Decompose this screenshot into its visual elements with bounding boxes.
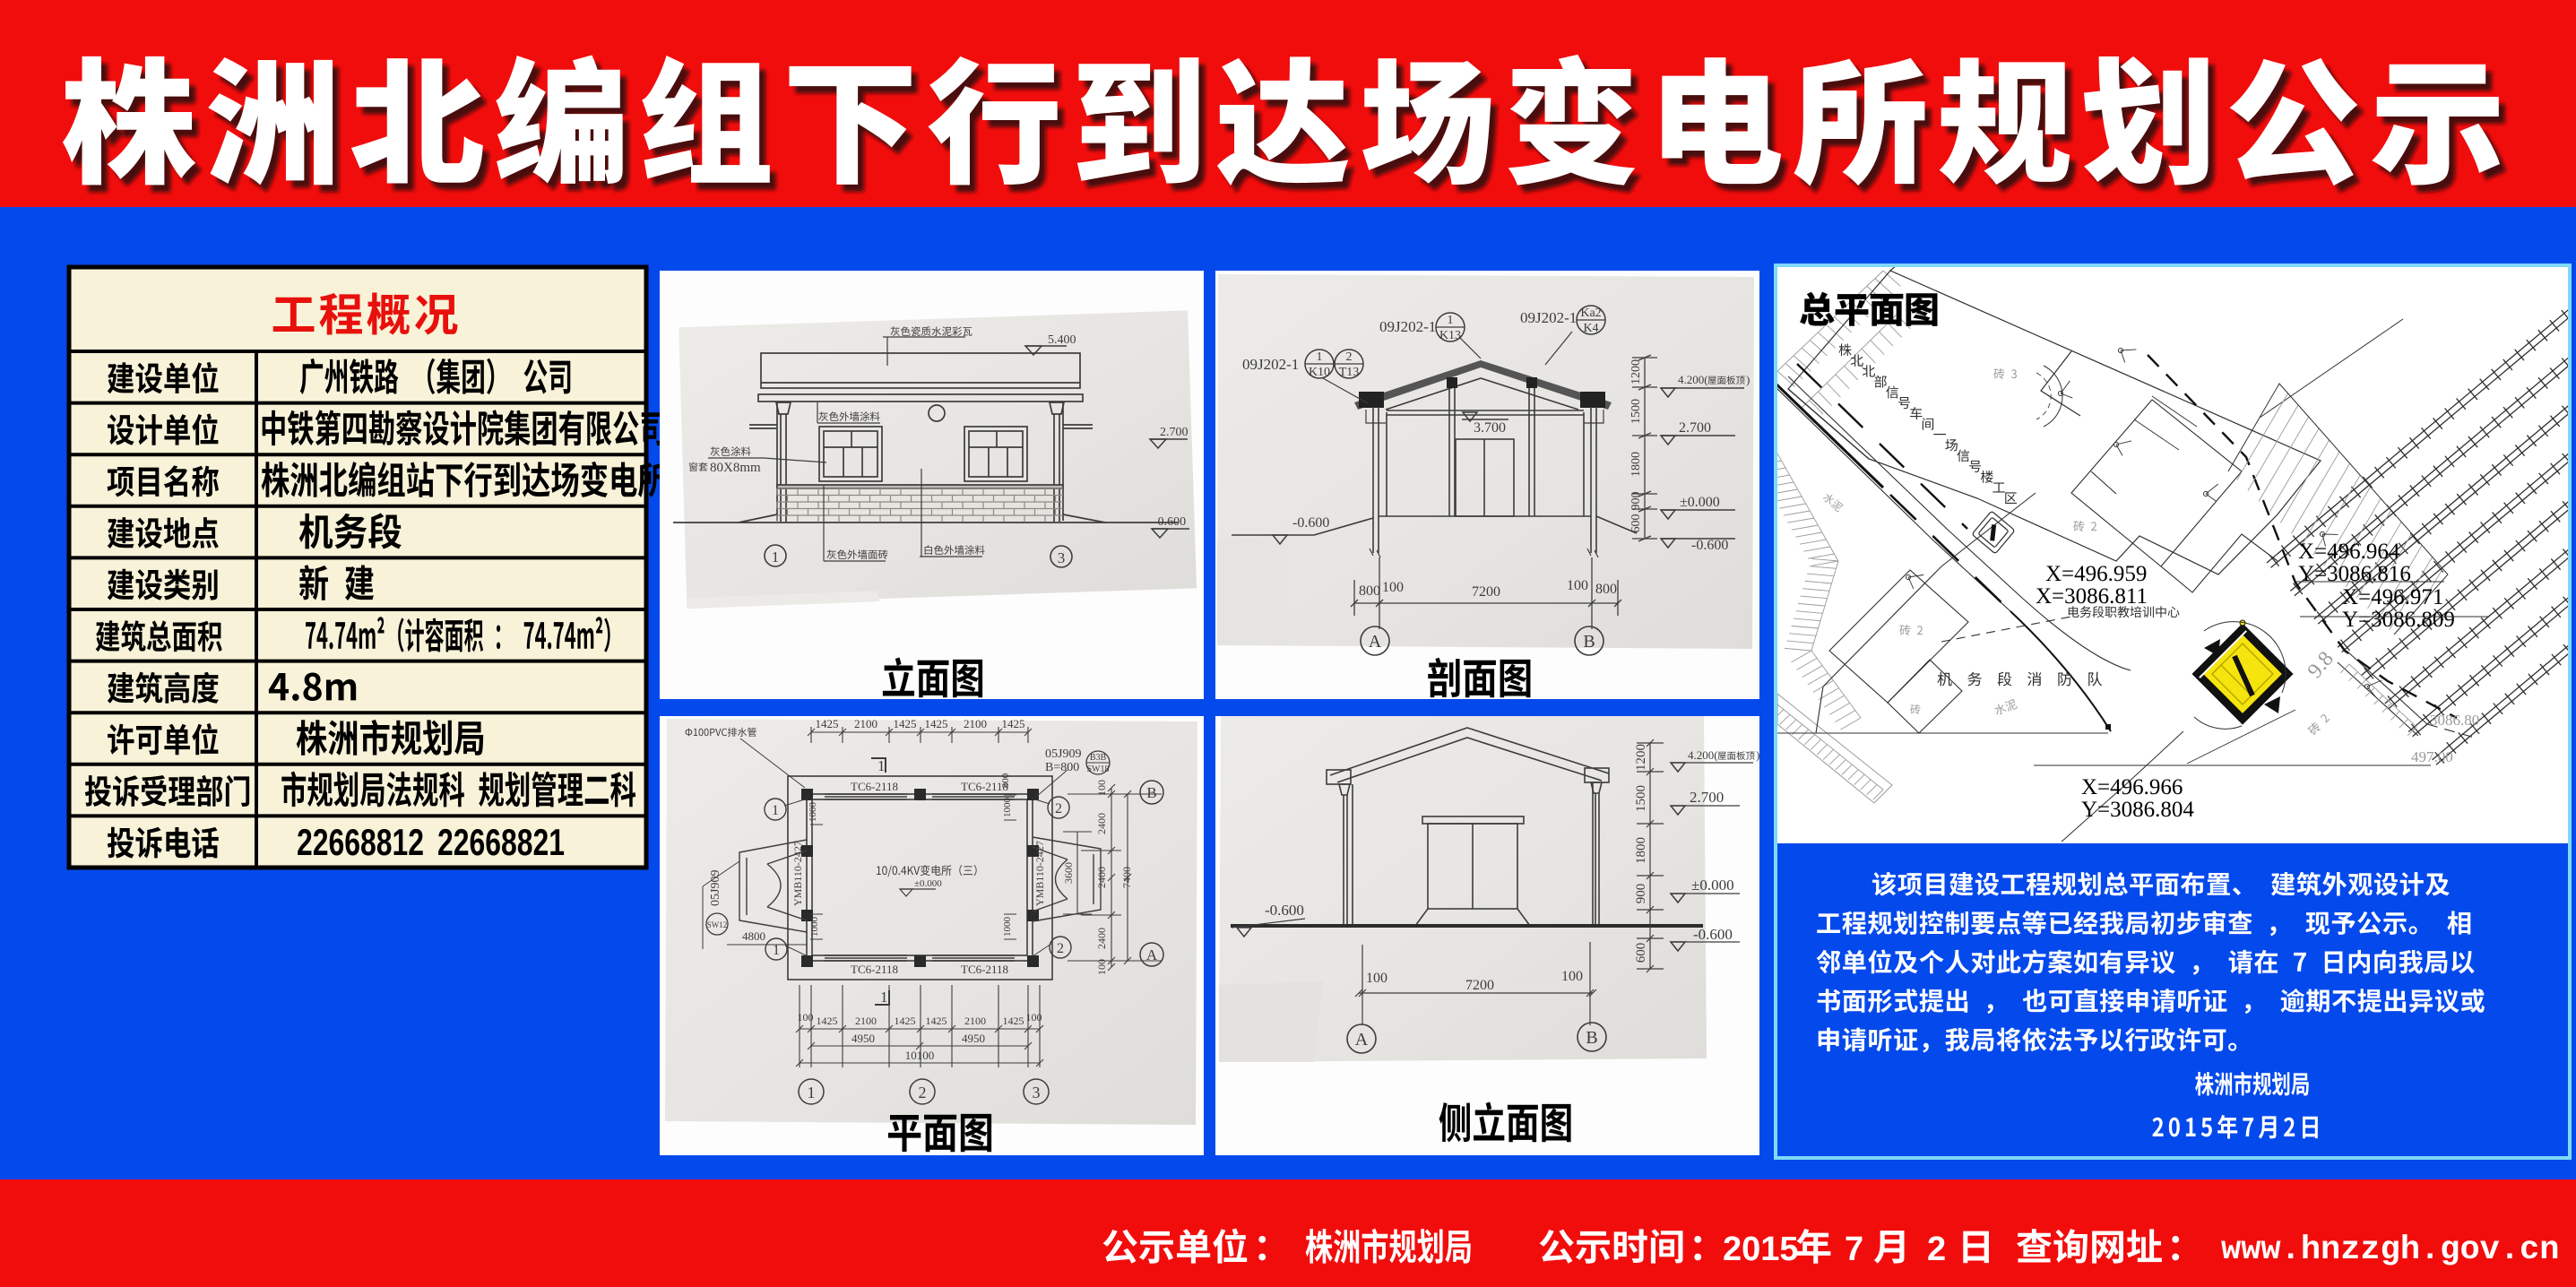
svg-text:www.hnzzgh.gov.cn: www.hnzzgh.gov.cn xyxy=(2221,1231,2559,1269)
svg-text:09J202-1: 09J202-1 xyxy=(1520,309,1577,326)
svg-text:±0.000: ±0.000 xyxy=(914,878,942,889)
svg-text:1: 1 xyxy=(880,989,888,1006)
svg-text:100: 100 xyxy=(1095,780,1108,796)
svg-text:): ) xyxy=(1756,748,1759,762)
svg-text:-0.600: -0.600 xyxy=(1154,515,1186,529)
svg-text:±0.000: ±0.000 xyxy=(1680,495,1720,510)
svg-text:2: 2 xyxy=(1055,801,1062,816)
svg-text:1000: 1000 xyxy=(1002,798,1013,818)
svg-text:05J909: 05J909 xyxy=(709,870,722,906)
svg-text:SW18: SW18 xyxy=(1087,764,1110,774)
svg-text:A: A xyxy=(1146,946,1158,963)
svg-text:X=496.964: X=496.964 xyxy=(2298,540,2400,564)
svg-text:1425: 1425 xyxy=(926,1015,947,1027)
svg-text:-0.600: -0.600 xyxy=(1292,515,1329,531)
svg-text:TC6-2118: TC6-2118 xyxy=(961,963,1008,976)
svg-text:2400: 2400 xyxy=(1095,928,1108,949)
svg-text:100: 100 xyxy=(1095,959,1108,975)
svg-text:3600: 3600 xyxy=(1062,862,1075,884)
svg-text:±0.000: ±0.000 xyxy=(1691,877,1734,894)
svg-text:100: 100 xyxy=(1561,969,1583,984)
svg-text:100: 100 xyxy=(798,1011,814,1024)
svg-text:2.700: 2.700 xyxy=(1160,426,1189,439)
svg-text:2100: 2100 xyxy=(964,1015,986,1027)
svg-text:T13: T13 xyxy=(1339,366,1360,379)
svg-text:4950: 4950 xyxy=(962,1032,985,1045)
svg-text:1800: 1800 xyxy=(1629,452,1643,477)
svg-text:7400: 7400 xyxy=(1120,867,1133,888)
svg-text:1425: 1425 xyxy=(925,717,948,730)
svg-text:09J202-1: 09J202-1 xyxy=(1379,318,1436,335)
svg-text:100: 100 xyxy=(1026,1011,1042,1024)
svg-text:4950: 4950 xyxy=(851,1032,875,1045)
svg-text:1425: 1425 xyxy=(894,717,917,730)
svg-text:1000: 1000 xyxy=(809,917,820,937)
svg-text:X=496.966: X=496.966 xyxy=(2081,775,2183,799)
svg-text:22668812: 22668812 xyxy=(297,821,424,863)
svg-text:1800: 1800 xyxy=(1634,837,1648,864)
svg-text:4.200(: 4.200( xyxy=(1688,748,1718,762)
svg-text:1: 1 xyxy=(877,757,886,774)
svg-text:800: 800 xyxy=(1359,583,1380,599)
svg-text:1425: 1425 xyxy=(895,1015,916,1027)
svg-text:900: 900 xyxy=(1629,492,1643,511)
svg-text:K4: K4 xyxy=(1583,322,1598,335)
svg-text:05J909: 05J909 xyxy=(1045,747,1081,761)
svg-text:600: 600 xyxy=(1634,943,1648,963)
svg-text:1: 1 xyxy=(1317,350,1323,364)
svg-text:A: A xyxy=(1369,632,1382,652)
svg-text:-0.600: -0.600 xyxy=(1265,902,1304,919)
svg-text:1: 1 xyxy=(772,548,780,566)
svg-text:2100: 2100 xyxy=(964,717,987,730)
svg-text:Ka2: Ka2 xyxy=(1580,307,1601,320)
svg-text:22668821: 22668821 xyxy=(437,821,565,863)
svg-text:1500: 1500 xyxy=(1634,785,1648,812)
svg-text:1200: 1200 xyxy=(1634,744,1648,771)
svg-text:2: 2 xyxy=(919,1084,927,1101)
svg-text:-0.600: -0.600 xyxy=(1693,926,1733,943)
svg-text:B: B xyxy=(1583,632,1595,652)
svg-text:100: 100 xyxy=(1382,580,1404,595)
svg-text:B: B xyxy=(1586,1028,1597,1048)
svg-text:900: 900 xyxy=(1634,884,1648,904)
svg-text:2: 2 xyxy=(1927,1231,1946,1268)
svg-text:1: 1 xyxy=(808,1084,816,1101)
svg-text:3086.80: 3086.80 xyxy=(2430,712,2479,729)
svg-text:1425: 1425 xyxy=(817,1015,838,1027)
svg-text:SW12: SW12 xyxy=(707,920,728,929)
svg-text:Y=3086.816: Y=3086.816 xyxy=(2298,562,2411,586)
svg-text:2.700: 2.700 xyxy=(1679,420,1711,436)
svg-text:2015: 2015 xyxy=(1723,1231,1799,1268)
svg-text:2.700: 2.700 xyxy=(1690,789,1724,806)
svg-text:2400: 2400 xyxy=(1095,867,1108,888)
svg-text:A: A xyxy=(1355,1030,1369,1049)
svg-text:1: 1 xyxy=(1448,314,1454,327)
svg-text:3: 3 xyxy=(1058,549,1066,566)
svg-text:1500: 1500 xyxy=(1629,399,1643,424)
svg-text:4.200(: 4.200( xyxy=(1678,373,1708,386)
svg-text:3: 3 xyxy=(1033,1084,1041,1101)
svg-text:1425: 1425 xyxy=(816,717,839,730)
svg-text:1200: 1200 xyxy=(1629,359,1643,384)
svg-text:5.400: 5.400 xyxy=(1048,333,1076,347)
svg-text:1000: 1000 xyxy=(1002,917,1013,937)
svg-text:7200: 7200 xyxy=(1472,584,1500,600)
svg-text:09J202-1: 09J202-1 xyxy=(1242,356,1299,373)
svg-text:X=3086.811: X=3086.811 xyxy=(2036,584,2148,609)
svg-text:10100: 10100 xyxy=(905,1049,935,1062)
svg-text:1000: 1000 xyxy=(808,802,818,823)
svg-text:7200: 7200 xyxy=(1465,978,1494,993)
svg-text:100: 100 xyxy=(1567,578,1588,593)
svg-text:K10: K10 xyxy=(1309,366,1330,379)
svg-text:800: 800 xyxy=(1595,582,1617,597)
svg-text:): ) xyxy=(1746,373,1750,386)
svg-text:497.00: 497.00 xyxy=(2411,748,2453,765)
svg-text:Y=3086.809: Y=3086.809 xyxy=(2342,608,2455,632)
svg-text:2: 2 xyxy=(1057,941,1064,956)
svg-text:B: B xyxy=(1146,784,1156,801)
svg-text:800: 800 xyxy=(1000,773,1011,788)
svg-text:2400: 2400 xyxy=(1095,813,1108,834)
svg-text:2100: 2100 xyxy=(855,1015,877,1027)
svg-text:TC6-2118: TC6-2118 xyxy=(851,963,898,976)
svg-text:X=496.959: X=496.959 xyxy=(2045,562,2147,586)
svg-text:4800: 4800 xyxy=(742,929,765,943)
svg-text:100: 100 xyxy=(1366,971,1387,986)
svg-text:1: 1 xyxy=(772,803,779,818)
svg-text:1425: 1425 xyxy=(1002,717,1025,730)
svg-text:80X8mm: 80X8mm xyxy=(710,461,761,475)
svg-text:K13: K13 xyxy=(1439,329,1461,342)
svg-text:TC6-2118: TC6-2118 xyxy=(851,780,898,793)
svg-text:B=800: B=800 xyxy=(1045,761,1079,774)
svg-text:X=496.971: X=496.971 xyxy=(2342,585,2443,609)
svg-text:YMB110-2427: YMB110-2427 xyxy=(1033,841,1046,906)
svg-text:YMB110-2427: YMB110-2427 xyxy=(791,841,804,906)
svg-text:Y=3086.804: Y=3086.804 xyxy=(2081,798,2194,822)
svg-text:600: 600 xyxy=(1629,514,1643,533)
svg-text:1425: 1425 xyxy=(1003,1015,1024,1027)
svg-text:7: 7 xyxy=(1845,1231,1863,1268)
svg-text:1: 1 xyxy=(773,943,780,958)
svg-text:-0.600: -0.600 xyxy=(1691,538,1728,553)
svg-text:B3B: B3B xyxy=(1090,753,1107,763)
svg-text:2100: 2100 xyxy=(854,717,877,730)
svg-text:2: 2 xyxy=(1346,350,1353,364)
svg-text:3.700: 3.700 xyxy=(1474,420,1506,436)
